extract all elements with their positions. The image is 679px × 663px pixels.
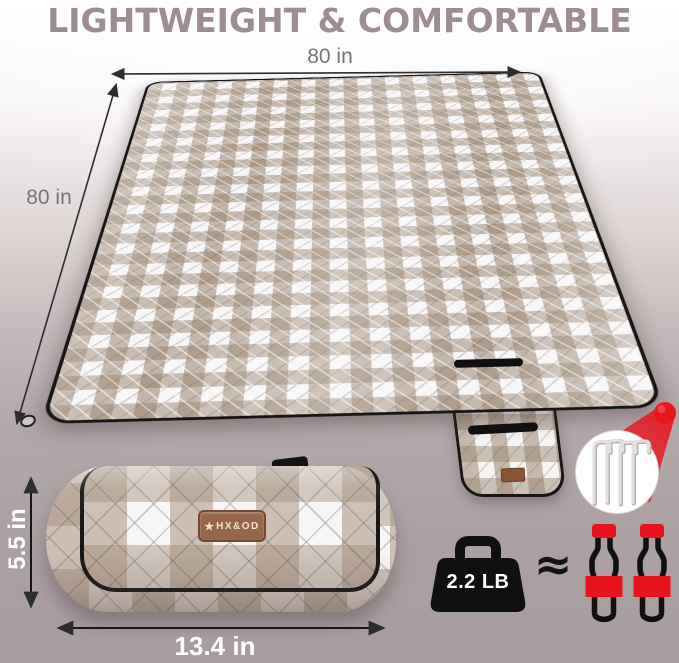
top-width-arrow (113, 72, 519, 74)
corner-marker-dot (654, 402, 676, 424)
page-title: LIGHTWEIGHT & COMFORTABLE (0, 1, 679, 40)
roll-height-label: 5.5 in (4, 489, 32, 589)
left-length-arrow (17, 85, 116, 423)
product-infographic: { "title": { "text": "LIGHTWEIGHT & COMF… (0, 0, 679, 663)
approx-symbol: ≈ (528, 541, 578, 587)
bottle-icon (634, 524, 671, 619)
corner-marker-highlight (658, 405, 666, 413)
bottle-icon (586, 524, 623, 619)
weight-value: 2.2 LB (436, 571, 520, 594)
top-width-label: 80 in (270, 45, 390, 69)
roll-width-label: 13.4 in (150, 631, 280, 662)
side-length-label: 80 in (16, 186, 82, 210)
corner-tie-loop (20, 414, 37, 428)
